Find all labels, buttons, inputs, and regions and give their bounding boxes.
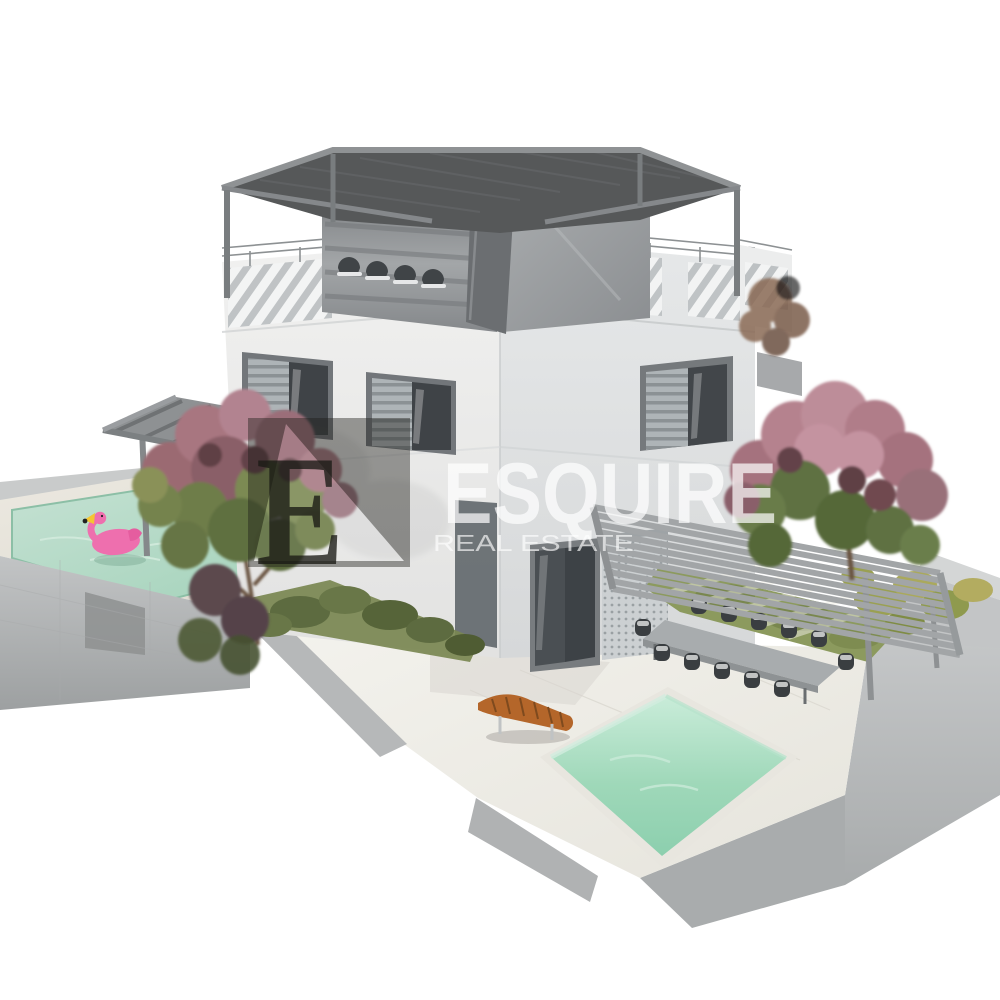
louver-panel bbox=[228, 258, 332, 328]
sliding-glass-door bbox=[530, 538, 600, 672]
window-upper-right bbox=[640, 356, 733, 451]
villa-render: E ESQUIRE REAL ESTATE bbox=[0, 0, 1000, 1000]
shed-roof bbox=[757, 352, 802, 396]
watermark-monogram: E bbox=[256, 424, 344, 599]
watermark-brand: ESQUIRE bbox=[443, 446, 777, 542]
window-shutter bbox=[646, 368, 688, 450]
render-canvas: E ESQUIRE REAL ESTATE bbox=[0, 0, 1000, 1000]
watermark-tagline: REAL ESTATE bbox=[433, 530, 634, 556]
